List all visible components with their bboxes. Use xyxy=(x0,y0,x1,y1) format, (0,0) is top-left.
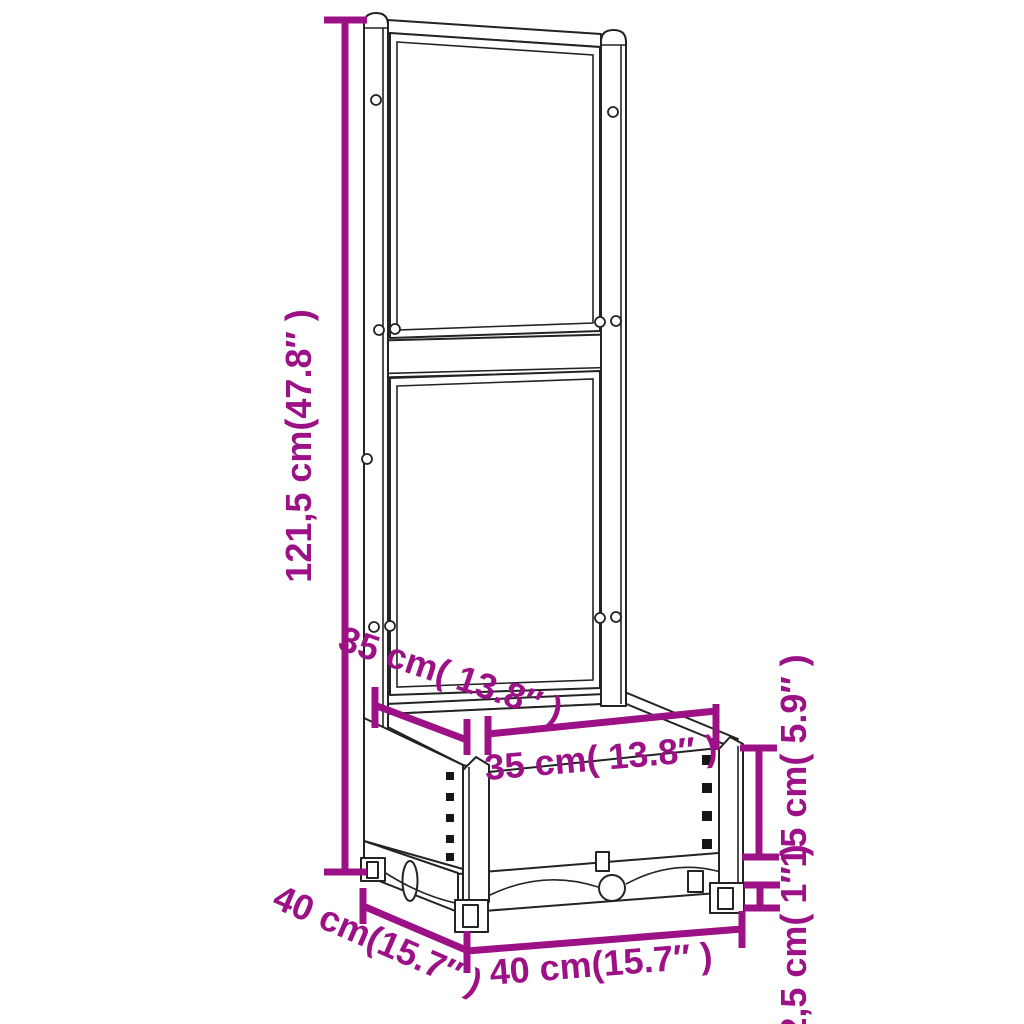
foot-front-right-inner xyxy=(718,888,733,909)
dim-foot-height-label: 2,5 cm( 1″ ) xyxy=(773,844,814,1024)
dim-foot-height: 2,5 cm( 1″ ) xyxy=(744,844,814,1024)
dim-box-height: 15 cm( 5.9″ ) xyxy=(740,654,814,867)
trellis xyxy=(362,13,626,742)
dim-box-height-label: 15 cm( 5.9″ ) xyxy=(773,654,814,867)
base-front-circle xyxy=(599,875,625,901)
dim-total-height-label: 121,5 cm(47.8″ ) xyxy=(278,309,319,582)
trellis-lattice-upper xyxy=(390,33,600,338)
base-left-oval xyxy=(403,861,418,901)
box-front-right-post xyxy=(719,737,743,890)
diagram-page: 121,5 cm(47.8″ ) 35 cm( 13.8″ ) 35 cm( 1… xyxy=(0,0,1024,1024)
foot-back-right xyxy=(688,871,703,892)
foot-back-left-inner xyxy=(367,862,378,878)
planter-dimension-diagram: 121,5 cm(47.8″ ) 35 cm( 13.8″ ) 35 cm( 1… xyxy=(0,0,1024,1024)
foot-front-left-inner xyxy=(463,905,478,927)
dim-front-width: 40 cm(15.7″ ) xyxy=(467,911,742,993)
base-front-tab xyxy=(596,852,609,871)
trellis-right-post xyxy=(601,30,626,706)
dim-total-height: 121,5 cm(47.8″ ) xyxy=(278,20,367,872)
